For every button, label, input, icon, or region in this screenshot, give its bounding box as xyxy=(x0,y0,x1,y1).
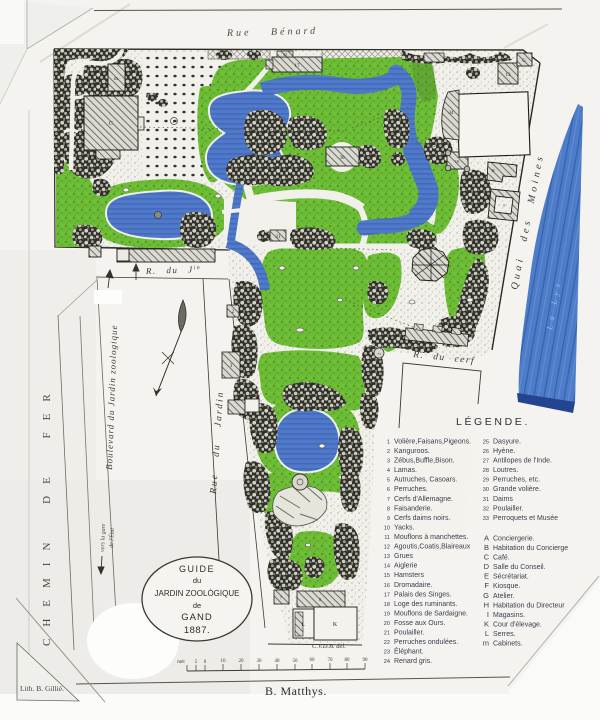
svg-text:30: 30 xyxy=(340,156,346,161)
svg-text:G: G xyxy=(483,591,489,600)
svg-text:29: 29 xyxy=(483,478,489,484)
svg-text:40: 40 xyxy=(275,659,281,664)
svg-text:32: 32 xyxy=(483,506,489,512)
svg-text:50: 50 xyxy=(293,659,299,664)
svg-text:2: 2 xyxy=(387,449,390,455)
svg-text:Grues: Grues xyxy=(394,553,414,560)
svg-text:12: 12 xyxy=(384,545,390,551)
svg-text:Café.: Café. xyxy=(493,555,510,562)
svg-text:B: B xyxy=(484,543,489,552)
svg-text:Cour d'élevage.: Cour d'élevage. xyxy=(493,622,542,629)
svg-text:32: 32 xyxy=(283,52,287,57)
svg-text:30: 30 xyxy=(483,487,489,493)
svg-text:C: C xyxy=(109,121,113,127)
svg-text:31: 31 xyxy=(483,497,489,503)
svg-text:Palais des Singes.: Palais des Singes. xyxy=(394,591,452,598)
svg-text:du: du xyxy=(193,576,201,585)
svg-text:Agoutis,Coatis,Blaireaux: Agoutis,Coatis,Blaireaux xyxy=(394,544,471,551)
svg-text:19: 19 xyxy=(384,611,390,617)
svg-text:Mouflons de Sardaigne.: Mouflons de Sardaigne. xyxy=(394,610,468,617)
svg-text:Grande volière.: Grande volière. xyxy=(493,486,541,493)
svg-text:13: 13 xyxy=(506,73,512,78)
svg-text:5: 5 xyxy=(387,478,390,484)
svg-text:8: 8 xyxy=(387,506,390,512)
svg-text:70: 70 xyxy=(328,658,334,663)
svg-text:73: 73 xyxy=(377,352,381,356)
svg-text:10: 10 xyxy=(384,526,390,532)
svg-text:23: 23 xyxy=(384,650,390,656)
svg-text:21: 21 xyxy=(384,631,390,637)
svg-text:1: 1 xyxy=(387,440,390,446)
svg-text:D: D xyxy=(484,562,490,571)
svg-text:Kiosque.: Kiosque. xyxy=(493,583,520,590)
svg-text:Cerfs d'Allemagne.: Cerfs d'Allemagne. xyxy=(394,496,453,503)
svg-text:E: E xyxy=(484,572,489,581)
svg-text:Poulailler.: Poulailler. xyxy=(493,505,523,512)
svg-text:Yacks.: Yacks. xyxy=(394,525,415,532)
svg-text:Zébus,Buffle,Bison.: Zébus,Buffle,Bison. xyxy=(394,458,455,465)
svg-text:11: 11 xyxy=(384,535,390,541)
svg-text:L: L xyxy=(485,629,489,638)
svg-text:31: 31 xyxy=(276,235,282,240)
svg-text:10: 10 xyxy=(455,159,460,164)
svg-text:3: 3 xyxy=(387,459,390,465)
svg-text:de: de xyxy=(193,601,201,610)
svg-text:17: 17 xyxy=(384,592,390,598)
svg-text:Renard gris.: Renard gris. xyxy=(394,658,432,665)
svg-text:Lamas.: Lamas. xyxy=(394,467,417,474)
svg-text:Conciergerie.: Conciergerie. xyxy=(493,536,535,543)
svg-text:Antilopes de l'Inde.: Antilopes de l'Inde. xyxy=(493,458,552,465)
svg-text:Mouflons à manchettes.: Mouflons à manchettes. xyxy=(394,534,468,541)
svg-text:LÉGENDE.: LÉGENDE. xyxy=(456,415,530,428)
svg-text:Loutres.: Loutres. xyxy=(493,467,518,474)
svg-text:16: 16 xyxy=(384,583,390,589)
svg-text:Perroquets et Musée: Perroquets et Musée xyxy=(493,515,558,522)
svg-text:4: 4 xyxy=(387,468,390,474)
svg-text:26: 26 xyxy=(483,449,489,455)
svg-text:27: 27 xyxy=(483,459,489,465)
svg-text:C.V.D.B. del.: C.V.D.B. del. xyxy=(312,643,346,650)
svg-text:C: C xyxy=(484,553,490,562)
svg-text:60: 60 xyxy=(310,658,316,663)
svg-text:K: K xyxy=(484,620,489,629)
svg-text:Magasins.: Magasins. xyxy=(493,612,525,619)
svg-text:Lith. B. Gillié.: Lith. B. Gillié. xyxy=(20,684,64,693)
svg-text:9: 9 xyxy=(387,516,390,522)
svg-text:Faisanderie.: Faisanderie. xyxy=(394,505,433,512)
svg-text:Salle du Conseil.: Salle du Conseil. xyxy=(493,564,546,571)
svg-text:GAND: GAND xyxy=(181,612,212,623)
svg-text:Sécrétariat.: Sécrétariat. xyxy=(493,574,529,581)
svg-text:15: 15 xyxy=(384,573,390,579)
svg-text:28: 28 xyxy=(483,468,489,474)
svg-text:Fosse aux Ours.: Fosse aux Ours. xyxy=(394,620,445,627)
svg-text:R. du Jin: R. du Jin xyxy=(145,264,202,276)
svg-text:I: I xyxy=(487,610,489,619)
svg-text:Habitation du Concierge: Habitation du Concierge xyxy=(493,545,568,552)
svg-text:20: 20 xyxy=(384,621,390,627)
svg-text:18: 18 xyxy=(384,602,390,608)
svg-text:Perruches ondulées.: Perruches ondulées. xyxy=(394,639,458,646)
svg-text:10: 10 xyxy=(221,659,227,664)
svg-text:24: 24 xyxy=(384,659,390,665)
svg-text:80: 80 xyxy=(345,658,351,663)
svg-text:Perruches, etc.: Perruches, etc. xyxy=(493,477,540,484)
svg-text:F: F xyxy=(484,581,489,590)
svg-text:G: G xyxy=(522,59,526,64)
svg-text:Loge des ruminants.: Loge des ruminants. xyxy=(394,601,457,608)
svg-text:A: A xyxy=(484,534,489,543)
svg-text:Cerfs daims noirs.: Cerfs daims noirs. xyxy=(394,515,450,522)
svg-text:7: 7 xyxy=(387,497,390,503)
svg-text:Poulailler.: Poulailler. xyxy=(394,630,424,637)
svg-text:B. Matthys.: B. Matthys. xyxy=(265,684,327,698)
svg-text:K: K xyxy=(333,622,338,628)
svg-text:33: 33 xyxy=(483,516,489,522)
svg-text:22: 22 xyxy=(384,640,390,646)
svg-text:Serres.: Serres. xyxy=(493,631,516,638)
svg-text:mét: mét xyxy=(177,660,185,665)
svg-text:1887.: 1887. xyxy=(184,625,210,636)
svg-text:6: 6 xyxy=(387,487,390,493)
svg-text:Éléphant.: Éléphant. xyxy=(394,647,424,656)
svg-text:H: H xyxy=(484,600,489,609)
svg-text:Hamsters: Hamsters xyxy=(394,572,424,579)
svg-text:Kanguroos.: Kanguroos. xyxy=(394,448,430,455)
svg-text:Daims: Daims xyxy=(493,496,513,503)
svg-text:17: 17 xyxy=(295,64,301,69)
svg-text:25: 25 xyxy=(483,440,489,446)
svg-text:Perruches.: Perruches. xyxy=(394,486,428,493)
svg-text:JARDIN ZOOLÒGIQUE: JARDIN ZOOLÒGIQUE xyxy=(155,589,240,598)
svg-text:Cabinets.: Cabinets. xyxy=(493,641,523,648)
svg-text:14: 14 xyxy=(384,564,390,570)
svg-text:Dasyure.: Dasyure. xyxy=(493,439,521,446)
svg-text:20: 20 xyxy=(239,659,245,664)
svg-text:34: 34 xyxy=(449,111,455,116)
svg-text:Volière,Faisans,Pigeons.: Volière,Faisans,Pigeons. xyxy=(394,439,471,446)
svg-text:CHEMIN DE FER: CHEMIN DE FER xyxy=(41,382,53,646)
svg-text:90: 90 xyxy=(363,658,369,663)
svg-text:vers la gare: vers la gare xyxy=(100,523,107,552)
svg-text:Habitation du Directeur: Habitation du Directeur xyxy=(493,602,565,609)
svg-text:Hyène.: Hyène. xyxy=(493,448,515,455)
svg-text:Dromadaire.: Dromadaire. xyxy=(394,582,433,589)
svg-text:Atelier.: Atelier. xyxy=(493,593,514,600)
svg-text:Autruches, Casoars.: Autruches, Casoars. xyxy=(394,477,457,484)
svg-text:m: m xyxy=(114,77,118,82)
svg-text:Aiglerie: Aiglerie xyxy=(394,563,417,570)
svg-text:GUIDE: GUIDE xyxy=(179,564,215,574)
svg-text:13: 13 xyxy=(384,554,390,560)
svg-text:30: 30 xyxy=(257,659,263,664)
svg-text:m: m xyxy=(483,639,489,648)
